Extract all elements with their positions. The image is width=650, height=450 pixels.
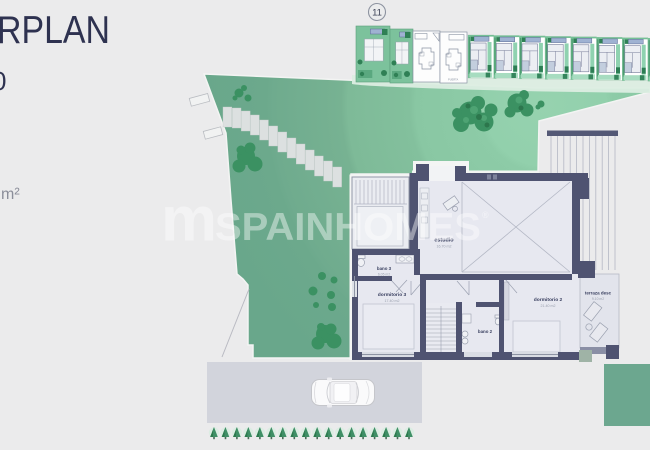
svg-text:®: ®: [482, 210, 489, 220]
svg-text:terraza desc: terraza desc: [585, 291, 612, 296]
svg-text:m²: m²: [1, 186, 20, 203]
svg-text:11: 11: [372, 8, 382, 19]
svg-text:bano 3: bano 3: [377, 266, 392, 271]
svg-text:dormitorio 2: dormitorio 2: [534, 297, 563, 303]
svg-text:m: m: [161, 185, 217, 255]
svg-text:9.10 m2: 9.10 m2: [592, 297, 604, 301]
svg-text:SPAINHOMES: SPAINHOMES: [215, 206, 481, 249]
svg-text:RPLAN: RPLAN: [0, 9, 110, 52]
svg-text:21.40 m2: 21.40 m2: [541, 304, 556, 308]
svg-text:17.40 m2: 17.40 m2: [385, 299, 400, 303]
svg-text:6.05 m2: 6.05 m2: [378, 273, 390, 277]
svg-text:PUERTA: PUERTA: [448, 78, 459, 82]
svg-text:0: 0: [0, 66, 6, 96]
svg-text:bano 2: bano 2: [478, 329, 493, 334]
svg-text:dormitorio 3: dormitorio 3: [378, 292, 407, 298]
